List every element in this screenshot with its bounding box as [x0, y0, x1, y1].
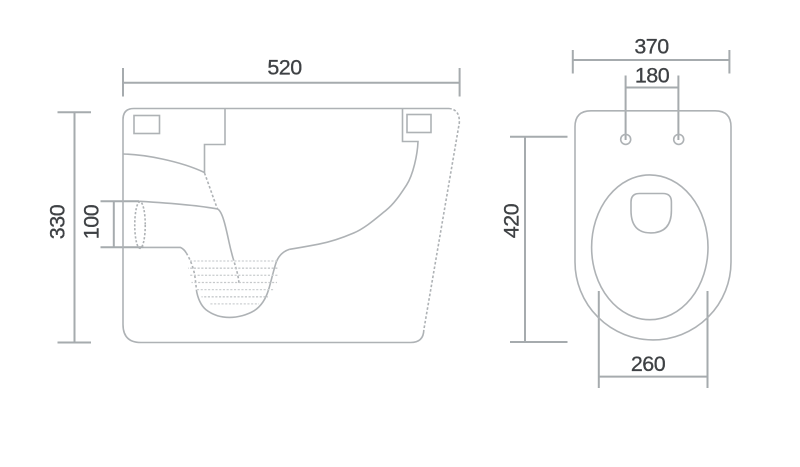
svg-text:520: 520: [267, 56, 302, 80]
svg-text:370: 370: [634, 35, 669, 59]
svg-text:100: 100: [80, 204, 104, 239]
svg-text:260: 260: [631, 352, 666, 376]
svg-text:420: 420: [500, 203, 524, 238]
svg-text:330: 330: [46, 204, 70, 239]
svg-text:180: 180: [635, 64, 670, 88]
